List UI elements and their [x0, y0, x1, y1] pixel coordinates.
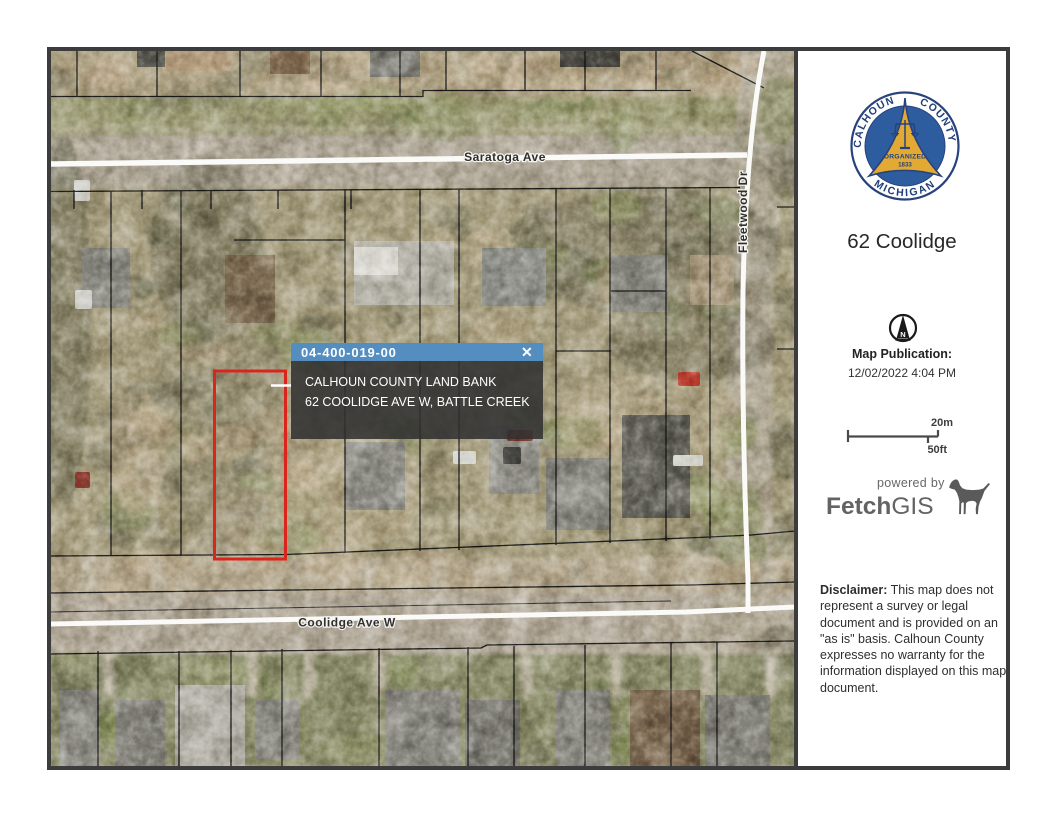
svg-text:1833: 1833 — [898, 162, 912, 169]
svg-text:50ft: 50ft — [927, 444, 947, 456]
svg-text:Fleetwood Dr: Fleetwood Dr — [736, 171, 750, 253]
svg-text:Saratoga Ave: Saratoga Ave — [464, 150, 546, 164]
svg-text:20m: 20m — [931, 417, 953, 429]
svg-text:N: N — [900, 330, 905, 339]
svg-text:ORGANIZED: ORGANIZED — [884, 154, 927, 161]
svg-text:Coolidge Ave W: Coolidge Ave W — [298, 616, 396, 630]
